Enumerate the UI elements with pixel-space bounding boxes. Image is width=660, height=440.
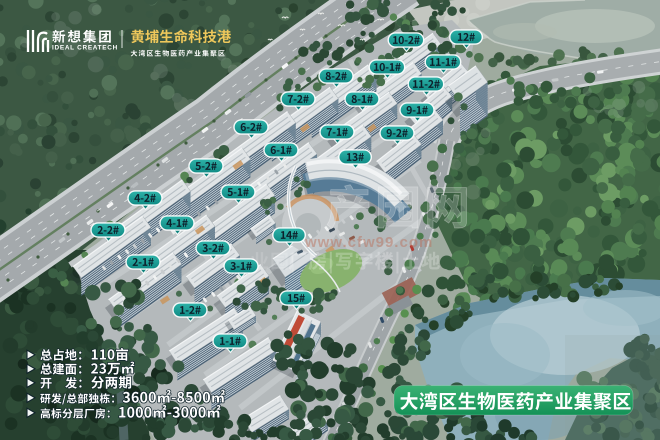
svg-text:www.cfw99.com: www.cfw99.com [304,234,433,251]
svg-text:IDEAL CREATECH: IDEAL CREATECH [52,45,118,52]
